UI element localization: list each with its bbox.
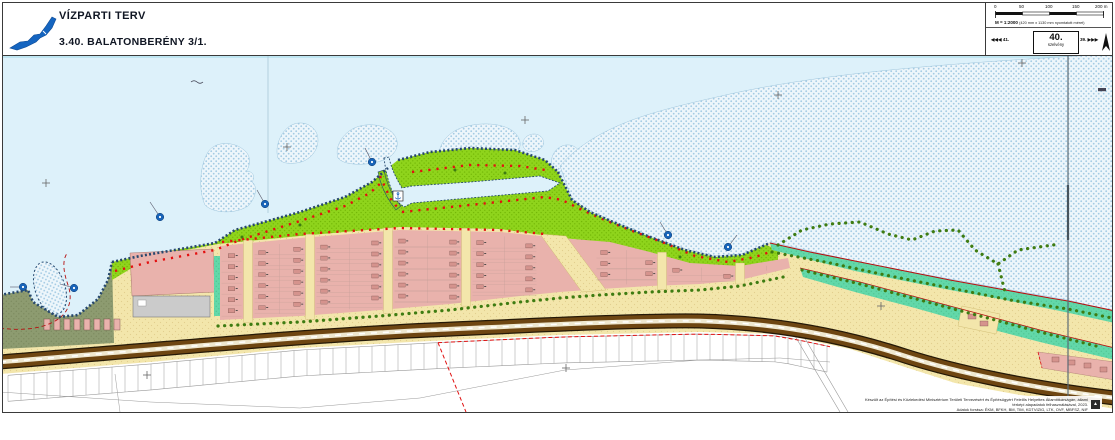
- sheet-subtitle: 3.40. BALATONBERÉNY 3/1.: [59, 36, 207, 48]
- plan-map-canvas: [0, 55, 1115, 412]
- scale-tick: 50: [1019, 4, 1024, 9]
- page-title: VÍZPARTI TERV: [59, 10, 146, 22]
- scale-tick: 0: [994, 4, 997, 9]
- beach-strip-west: [214, 256, 221, 316]
- panel-divider: [985, 3, 986, 55]
- header-separator: [3, 55, 1112, 56]
- credits-block: Készült az Építési és Közlekedési Minisz…: [852, 396, 1102, 413]
- panel-divider: [986, 27, 1111, 28]
- next-sheet-ref: 39. ▶▶▶: [1080, 37, 1098, 43]
- scale-text: M = 1:2000: [995, 20, 1018, 25]
- sheet-number-label: szelvény: [1034, 43, 1078, 47]
- plan-sheet: VÍZPARTI TERV 3.40. BALATONBERÉNY 3/1. 0…: [0, 0, 1115, 440]
- title-block: VÍZPARTI TERV 3.40. BALATONBERÉNY 3/1. 0…: [3, 3, 1112, 55]
- scale-bar: [995, 11, 1107, 19]
- large-building: [133, 296, 210, 317]
- credits-line2: Adatok forrása: ÉKM, BFKH, BM, TIM, KDTV…: [957, 407, 1088, 412]
- balaton-lake-logo: [7, 7, 57, 53]
- credits-line1: Készült az Építési és Közlekedési Minisz…: [865, 397, 1088, 407]
- scale-note: (420 mm x 1130 mm nyomtatott méret): [1019, 21, 1084, 25]
- sheet-number-box: 40. szelvény: [1033, 31, 1079, 54]
- scale-tick: 200 m: [1095, 4, 1108, 9]
- scale-tick: 150: [1072, 4, 1080, 9]
- scale-tick: 100: [1045, 4, 1053, 9]
- harbor-symbol: [393, 191, 403, 201]
- north-arrow-icon: [1099, 31, 1113, 53]
- publisher-stamp-icon: ▲: [1091, 400, 1100, 409]
- prev-sheet-ref: ◀◀◀ 41.: [991, 37, 1009, 43]
